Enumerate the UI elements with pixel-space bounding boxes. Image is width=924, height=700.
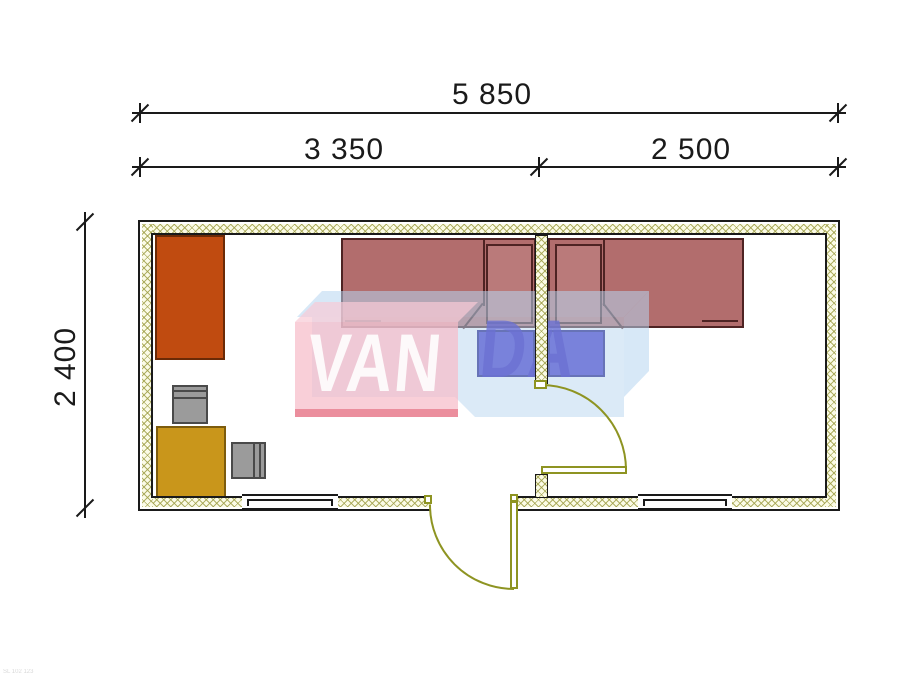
dim-label-room-left: 3 350	[304, 133, 384, 167]
floor-plan-drawing: 5 850 3 350 2 500 2 400 VAN DA	[0, 0, 924, 700]
dim-label-height: 2 400	[49, 319, 83, 415]
interior-door-leaf	[541, 466, 627, 474]
exterior-door-arc	[430, 505, 514, 589]
window-left	[242, 494, 338, 510]
partition-end-cap	[534, 380, 547, 389]
window-frame	[247, 499, 333, 506]
dim-line-total-width	[132, 112, 846, 114]
wall-stub	[535, 474, 548, 498]
dim-line-rooms	[132, 166, 846, 168]
wall-inner-outline	[151, 233, 827, 498]
dim-label-room-right: 2 500	[651, 133, 731, 167]
exterior-door-hinge	[510, 494, 518, 502]
exterior-door-leaf	[510, 501, 518, 589]
window-frame	[643, 499, 727, 506]
window-right	[638, 494, 732, 510]
dim-line-height	[84, 214, 86, 516]
door-frame-post	[424, 495, 432, 504]
partition-wall	[535, 235, 548, 384]
dim-label-total-width: 5 850	[452, 78, 532, 112]
corner-note: SL 102 123	[3, 669, 33, 675]
door-opening-exterior	[431, 493, 510, 512]
